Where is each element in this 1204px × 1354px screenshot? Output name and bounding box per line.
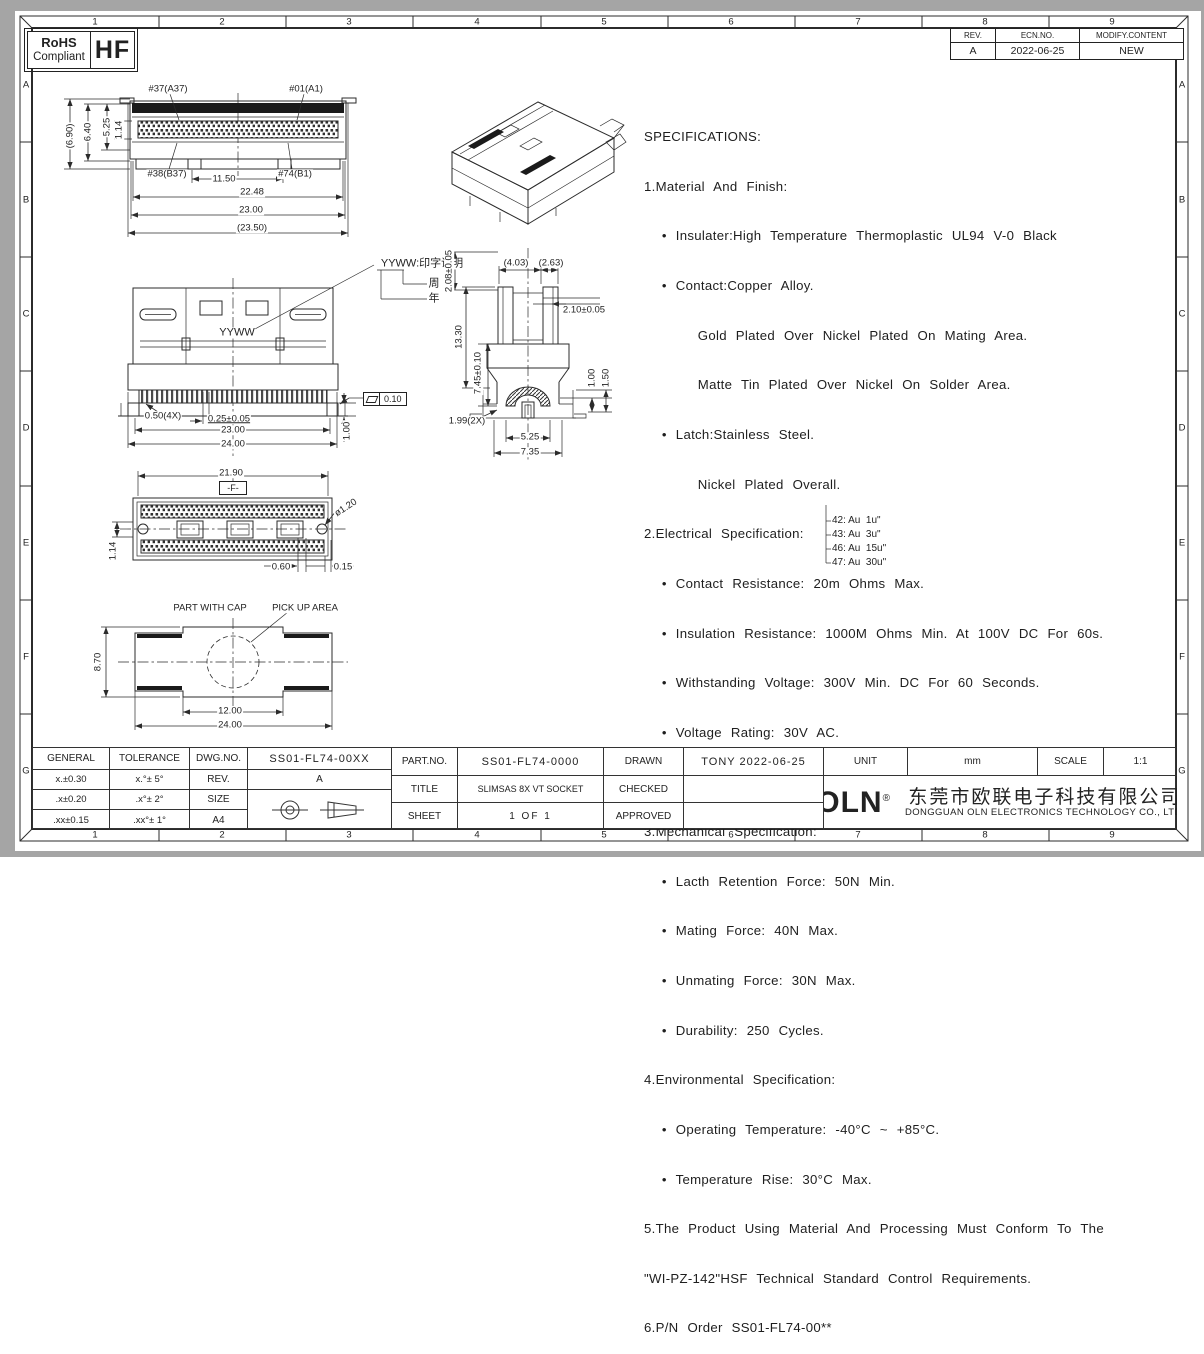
spec-line: • Withstanding Voltage: 300V Min. DC For… bbox=[644, 675, 1104, 692]
spec-line: • Voltage Rating: 30V AC. bbox=[644, 725, 1104, 742]
pn-option: 47: Au 30u" bbox=[832, 558, 886, 568]
dim-label: 22.48 bbox=[239, 187, 265, 197]
checked-value-cell bbox=[683, 775, 823, 802]
tolerance-cell: x.°± 5° bbox=[109, 769, 189, 789]
checked-label: CHECKED bbox=[603, 775, 683, 802]
dim-label: 1.00 bbox=[587, 368, 597, 389]
grid-col-label: 6 bbox=[728, 17, 733, 28]
revision-table: REV. ECN.NO. MODIFY.CONTENT A 2022-06-25… bbox=[950, 28, 1184, 60]
grid-row-label: D bbox=[1179, 423, 1186, 434]
grid-row-label: A bbox=[23, 80, 29, 91]
pn-option: 42: Au 1u" bbox=[832, 516, 881, 526]
title-label: TITLE bbox=[391, 775, 457, 802]
rev-header: REV. bbox=[951, 29, 995, 42]
title-value: SLIMSAS 8X VT SOCKET bbox=[457, 775, 603, 802]
pn-option: 46: Au 15u" bbox=[832, 544, 886, 554]
spec-line: SPECIFICATIONS: bbox=[644, 129, 1104, 146]
rev-value: A bbox=[951, 42, 995, 59]
specifications-block: SPECIFICATIONS: 1.Material And Finish: •… bbox=[644, 96, 1104, 1354]
grid-col-label: 2 bbox=[219, 830, 224, 841]
tolerance-cell: .x°± 2° bbox=[109, 789, 189, 809]
dim-label: (2.63) bbox=[538, 258, 565, 268]
spec-line: 6.P/N Order SS01-FL74-00** bbox=[644, 1320, 1104, 1337]
dim-label: 0.25±0.05 bbox=[207, 414, 251, 424]
dim-label: 2.08±0.05 bbox=[444, 249, 454, 293]
grid-row-label: E bbox=[23, 538, 29, 549]
dim-label: 0.15 bbox=[333, 562, 354, 572]
grid-row-label: E bbox=[1179, 538, 1185, 549]
spec-line: • Contact Resistance: 20m Ohms Max. bbox=[644, 576, 1104, 593]
dim-label: 24.00 bbox=[220, 439, 246, 449]
grid-row-label: F bbox=[1179, 652, 1185, 663]
dim-label: (23.50) bbox=[236, 223, 268, 233]
dim-label: 0.50(4X) bbox=[144, 411, 182, 421]
tolerance-cell: .x±0.20 bbox=[33, 789, 109, 809]
marking-year-label: 年 bbox=[428, 294, 441, 305]
drawn-label: DRAWN bbox=[603, 748, 683, 775]
dim-label: 24.00 bbox=[217, 720, 243, 730]
grid-col-label: 5 bbox=[601, 830, 606, 841]
grid-col-label: 9 bbox=[1109, 830, 1114, 841]
projection-symbol-cell bbox=[247, 789, 391, 830]
spec-line: • Temperature Rise: 30°C Max. bbox=[644, 1172, 1104, 1189]
scale-label: SCALE bbox=[1037, 748, 1103, 775]
grid-row-label: G bbox=[22, 766, 29, 777]
view-caption: PART WITH CAP bbox=[172, 603, 247, 613]
view-caption: PICK UP AREA bbox=[271, 603, 339, 613]
pin-label: #74(B1) bbox=[277, 169, 313, 179]
rohs-label: RoHS Compliant bbox=[28, 32, 91, 68]
approved-value-cell bbox=[683, 802, 823, 830]
pn-option: 43: Au 3u" bbox=[832, 530, 881, 540]
spec-line: 4.Environmental Specification: bbox=[644, 1072, 1104, 1089]
dim-label: 11.50 bbox=[211, 174, 236, 184]
dim-label: 1.99(2X) bbox=[448, 416, 486, 426]
rohs-line2: Compliant bbox=[33, 51, 85, 64]
grid-row-label: A bbox=[1179, 80, 1185, 91]
approved-label: APPROVED bbox=[603, 802, 683, 830]
grid-col-label: 4 bbox=[474, 17, 479, 28]
part-no-label: PART.NO. bbox=[391, 748, 457, 775]
top-view-drawing bbox=[64, 93, 356, 237]
grid-col-label: 1 bbox=[92, 830, 97, 841]
company-name-en: DONGGUAN OLN ELECTRONICS TECHNOLOGY CO.,… bbox=[905, 808, 1177, 819]
pin-label: #37(A37) bbox=[147, 84, 188, 94]
dim-label: 8.70 bbox=[93, 652, 103, 673]
dim-label: 7.35 bbox=[520, 447, 541, 457]
company-names: 东莞市欧联电子科技有限公司 DONGGUAN OLN ELECTRONICS T… bbox=[905, 787, 1177, 820]
dim-label: 5.25 bbox=[102, 117, 112, 138]
spec-line: Gold Plated Over Nickel Plated On Mating… bbox=[644, 328, 1104, 345]
tolerance-header: TOLERANCE bbox=[109, 748, 189, 769]
dim-label: 23.00 bbox=[220, 425, 246, 435]
grid-row-label: D bbox=[23, 423, 30, 434]
grid-row-label: F bbox=[23, 652, 29, 663]
spec-line: • Unmating Force: 30N Max. bbox=[644, 973, 1104, 990]
grid-col-label: 5 bbox=[601, 17, 606, 28]
grid-row-label: B bbox=[1179, 195, 1185, 206]
modify-header: MODIFY.CONTENT bbox=[1079, 29, 1183, 42]
marking-week-label: 周 bbox=[428, 279, 441, 290]
grid-row-label: B bbox=[23, 195, 29, 206]
dim-label: 0.60 bbox=[271, 562, 292, 572]
company-name-cn: 东莞市欧联电子科技有限公司 bbox=[908, 787, 1177, 809]
datum-f-label: -F- bbox=[219, 481, 247, 495]
dim-label: 1.14 bbox=[114, 120, 124, 141]
pin-label: #01(A1) bbox=[288, 84, 324, 94]
front-view-drawing bbox=[118, 265, 427, 456]
datum-f-text: -F- bbox=[227, 483, 239, 493]
spec-line: • Lacth Retention Force: 50N Min. bbox=[644, 874, 1104, 891]
dim-label: (4.03) bbox=[503, 258, 530, 268]
spec-line: • Operating Temperature: -40°C ~ +85°C. bbox=[644, 1122, 1104, 1139]
drawn-value: TONY 2022-06-25 bbox=[683, 748, 823, 775]
spec-line: Nickel Plated Overall. bbox=[644, 477, 1104, 494]
rev-label: REV. bbox=[189, 769, 247, 789]
grid-col-label: 4 bbox=[474, 830, 479, 841]
dwg-no-value: SS01-FL74-00XX bbox=[247, 748, 391, 769]
dwg-no-label: DWG.NO. bbox=[189, 748, 247, 769]
marking-text: YYWW bbox=[218, 328, 255, 339]
dim-label: 6.40 bbox=[83, 122, 93, 143]
general-header: GENERAL bbox=[33, 748, 109, 769]
size-value: A4 bbox=[189, 809, 247, 830]
grid-row-label: G bbox=[1178, 766, 1185, 777]
sheet-value: 1 OF 1 bbox=[457, 802, 603, 830]
spec-line: • Latch:Stainless Steel. bbox=[644, 427, 1104, 444]
spec-line: "WI-PZ-142"HSF Technical Standard Contro… bbox=[644, 1271, 1104, 1288]
engineering-drawing-page: { "frame": { "cols": ["1","2","3","4","5… bbox=[0, 0, 1204, 857]
scale-value: 1:1 bbox=[1103, 748, 1177, 775]
spec-line: 5.The Product Using Material And Process… bbox=[644, 1221, 1104, 1238]
rohs-hf-code: HF bbox=[91, 32, 134, 68]
grid-row-label: C bbox=[1179, 309, 1186, 320]
unit-value: mm bbox=[907, 748, 1037, 775]
modify-value: NEW bbox=[1079, 42, 1183, 59]
spec-line: • Insulater:High Temperature Thermoplast… bbox=[644, 228, 1104, 245]
oln-logo: OLN® bbox=[823, 788, 891, 818]
third-angle-projection-icon bbox=[250, 792, 390, 828]
ecn-header: ECN.NO. bbox=[995, 29, 1079, 42]
spec-line: • Contact:Copper Alloy. bbox=[644, 278, 1104, 295]
part-no-value: SS01-FL74-0000 bbox=[457, 748, 603, 775]
dim-label: 1.14 bbox=[108, 541, 118, 562]
dim-label: 1.50 bbox=[601, 368, 611, 389]
dim-label: 23.00 bbox=[238, 205, 264, 215]
registered-mark: ® bbox=[883, 793, 891, 804]
isometric-view-drawing bbox=[452, 102, 626, 224]
oln-logo-text: OLN bbox=[823, 786, 883, 819]
spec-line: Matte Tin Plated Over Nickel On Solder A… bbox=[644, 377, 1104, 394]
grid-col-label: 7 bbox=[855, 17, 860, 28]
rohs-badge: RoHS Compliant HF bbox=[27, 31, 135, 69]
flatness-symbol-icon bbox=[364, 393, 380, 405]
flatness-value: 0.10 bbox=[380, 394, 406, 404]
grid-col-label: 3 bbox=[346, 830, 351, 841]
title-block: GENERAL TOLERANCE x.±0.30 x.°± 5° .x±0.2… bbox=[32, 747, 1176, 829]
dim-label: 12.00 bbox=[217, 706, 243, 716]
grid-col-label: 2 bbox=[219, 17, 224, 28]
spec-line: 1.Material And Finish: bbox=[644, 179, 1104, 196]
size-label: SIZE bbox=[189, 789, 247, 809]
tolerance-cell: x.±0.30 bbox=[33, 769, 109, 789]
dim-label: 5.25 bbox=[520, 432, 541, 442]
grid-row-label: C bbox=[23, 309, 30, 320]
spec-line: • Durability: 250 Cycles. bbox=[644, 1023, 1104, 1040]
grid-col-label: 3 bbox=[346, 17, 351, 28]
grid-col-label: 1 bbox=[92, 17, 97, 28]
company-logo-area: OLN® 东莞市欧联电子科技有限公司 DONGGUAN OLN ELECTRON… bbox=[823, 775, 1177, 830]
dim-label: 13.30 bbox=[454, 324, 464, 350]
spec-line: • Insulation Resistance: 1000M Ohms Min.… bbox=[644, 626, 1104, 643]
dim-label: 7.45±0.10 bbox=[473, 351, 483, 395]
tolerance-cell: .xx°± 1° bbox=[109, 809, 189, 830]
grid-col-label: 9 bbox=[1109, 17, 1114, 28]
unit-label: UNIT bbox=[823, 748, 907, 775]
flatness-feature-control-frame: 0.10 bbox=[363, 392, 407, 406]
spec-line: • Mating Force: 40N Max. bbox=[644, 923, 1104, 940]
sheet-label: SHEET bbox=[391, 802, 457, 830]
pin-label: #38(B37) bbox=[146, 169, 187, 179]
grid-col-label: 8 bbox=[982, 17, 987, 28]
rohs-line1: RoHS bbox=[41, 36, 76, 51]
dim-label: 21.90 bbox=[218, 468, 244, 478]
ecn-value: 2022-06-25 bbox=[995, 42, 1079, 59]
dim-label: (6.90) bbox=[65, 123, 75, 150]
dim-label: 1.00 bbox=[342, 421, 352, 442]
tolerance-cell: .xx±0.15 bbox=[33, 809, 109, 830]
dim-label: 2.10±0.05 bbox=[562, 305, 606, 315]
rev-value: A bbox=[247, 769, 391, 789]
